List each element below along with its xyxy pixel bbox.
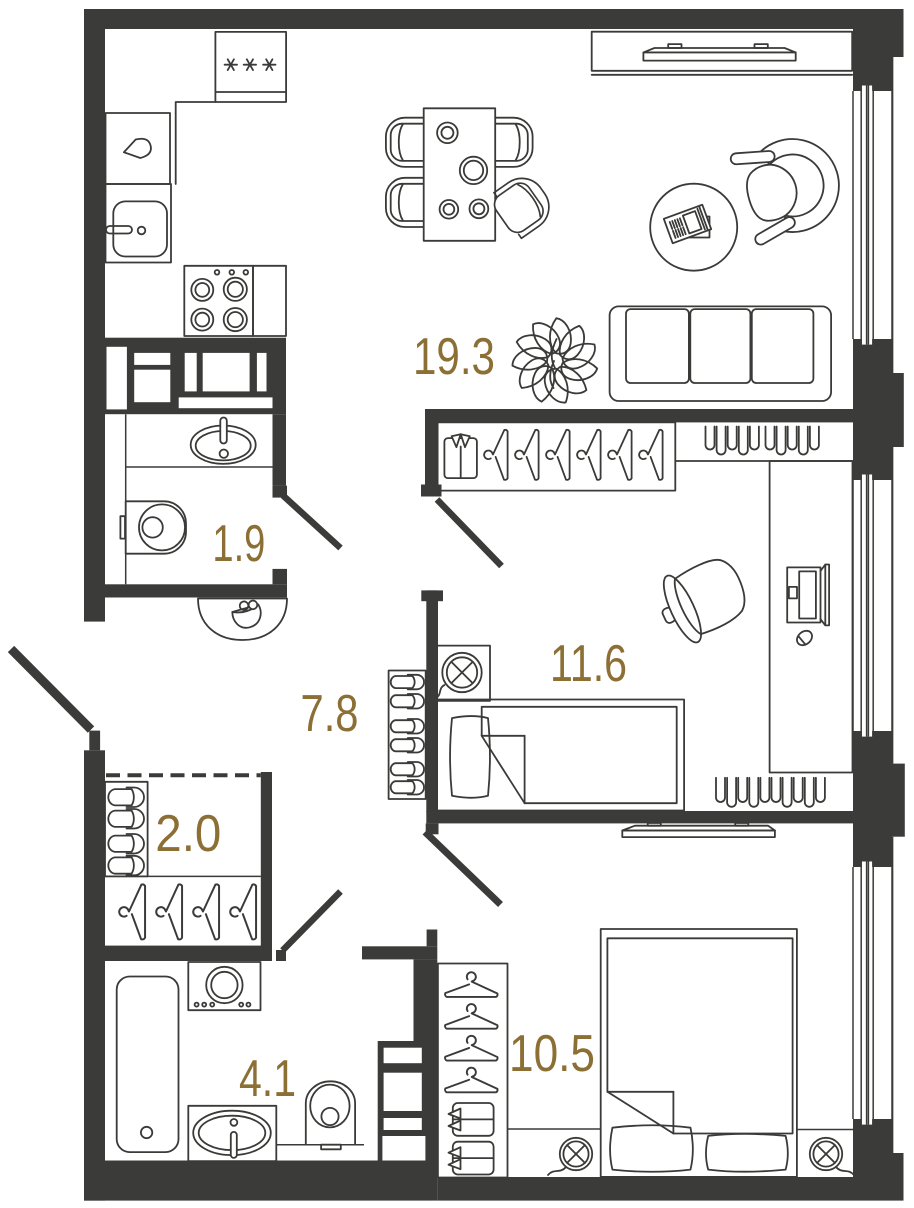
svg-text:19.3: 19.3 [413,328,495,386]
svg-text:2.0: 2.0 [155,805,221,863]
svg-text:11.6: 11.6 [550,635,627,693]
svg-text:4.1: 4.1 [239,1050,296,1108]
svg-text:7.8: 7.8 [301,685,359,743]
svg-text:10.5: 10.5 [509,1025,595,1083]
svg-text:1.9: 1.9 [212,515,265,573]
